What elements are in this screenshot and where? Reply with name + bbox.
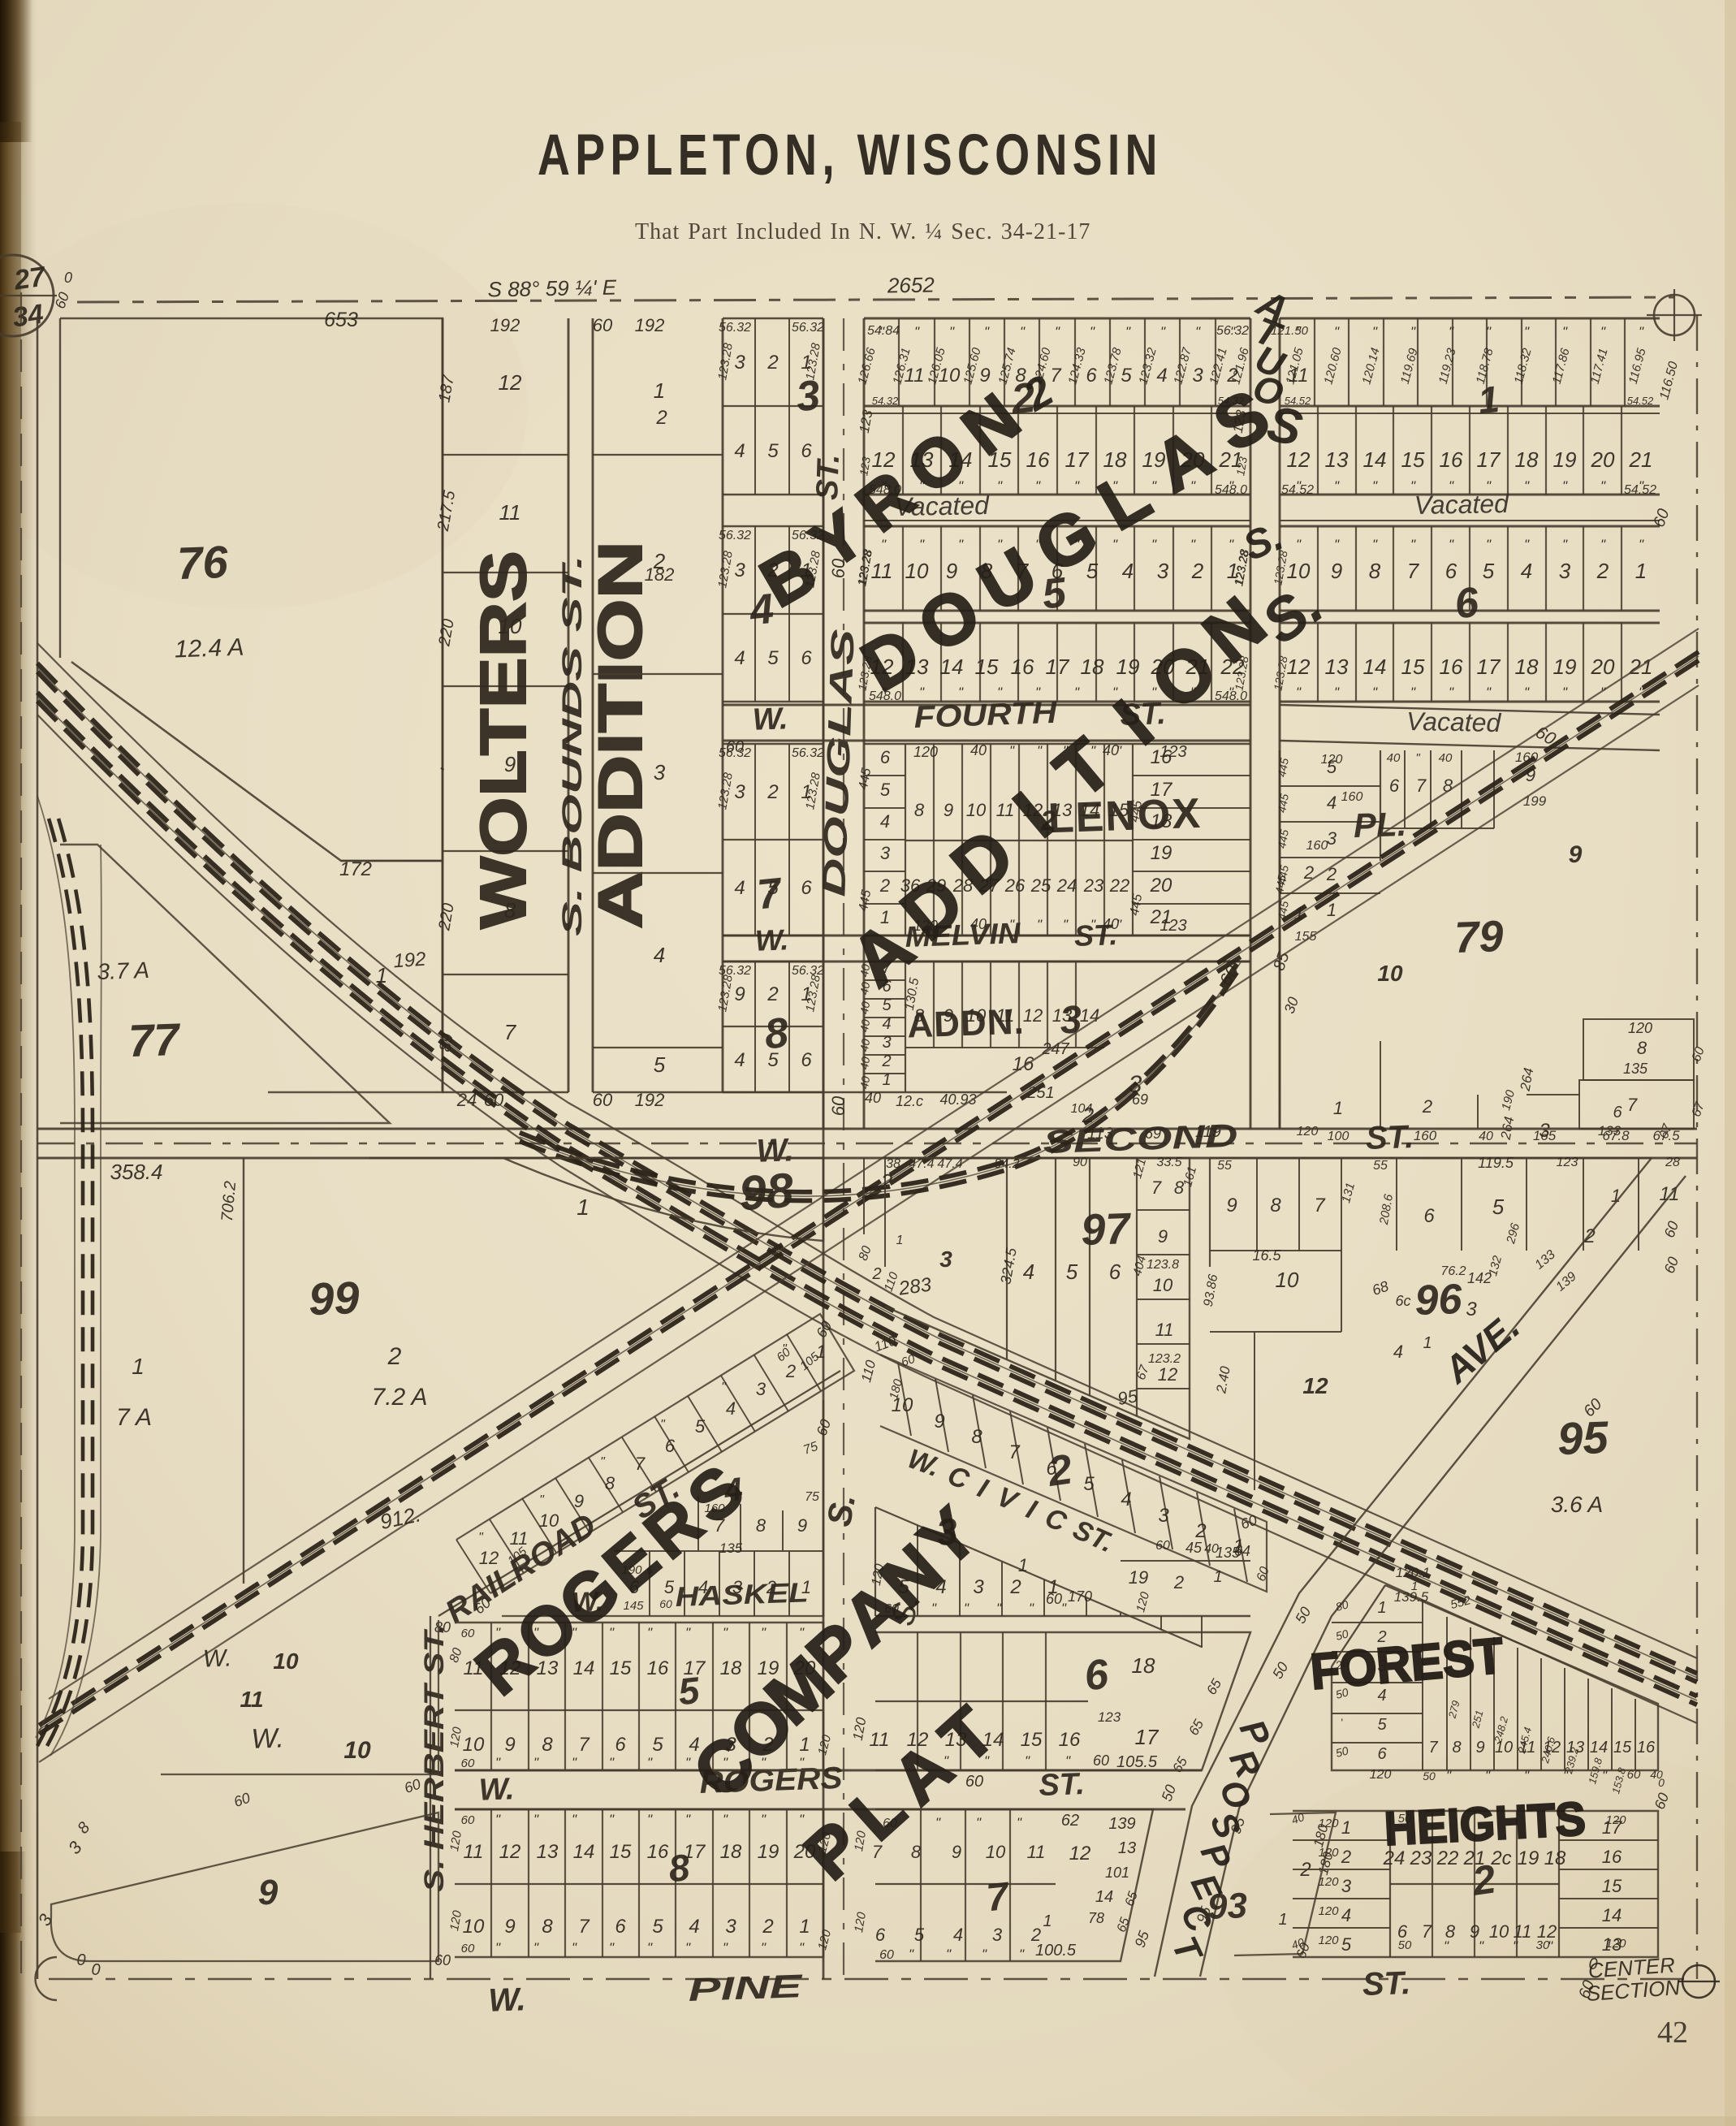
svg-text:": " (958, 685, 964, 700)
svg-text:": " (685, 1812, 691, 1827)
svg-text:1: 1 (1341, 1817, 1351, 1838)
svg-text:S 88° 59 ¼' E: S 88° 59 ¼' E (487, 275, 617, 302)
svg-text:247: 247 (1041, 1040, 1069, 1058)
svg-text:2: 2 (1422, 1096, 1432, 1117)
svg-text:": " (799, 1940, 805, 1955)
svg-text:6: 6 (801, 647, 812, 669)
svg-text:192: 192 (635, 315, 665, 335)
svg-text:123: 123 (1098, 1709, 1121, 1725)
svg-text:PL.: PL. (1353, 805, 1407, 845)
svg-text:19: 19 (1553, 655, 1577, 679)
svg-text:120: 120 (1318, 1904, 1339, 1918)
svg-text:": " (1063, 917, 1069, 932)
svg-text:": " (1019, 1947, 1025, 1962)
svg-text:": " (1639, 324, 1644, 339)
svg-text:172: 172 (339, 858, 372, 880)
svg-text:54.52: 54.52 (1627, 395, 1654, 407)
svg-text:7: 7 (1407, 559, 1420, 583)
svg-text:5: 5 (652, 1734, 663, 1756)
svg-text:": " (723, 1940, 728, 1955)
svg-text:4: 4 (734, 1049, 745, 1071)
svg-text:": " (609, 1812, 615, 1827)
svg-text:14: 14 (1363, 447, 1387, 472)
svg-text:Vacated: Vacated (1414, 489, 1509, 520)
svg-text:3: 3 (1192, 365, 1203, 387)
svg-text:18: 18 (1515, 655, 1539, 679)
svg-text:16: 16 (1440, 655, 1463, 679)
svg-text:192: 192 (490, 315, 520, 335)
svg-text:Vacated: Vacated (1406, 707, 1502, 737)
svg-text:": " (1372, 685, 1378, 700)
svg-text:12.4 A: 12.4 A (174, 634, 244, 663)
svg-text:62: 62 (1061, 1812, 1079, 1830)
svg-text:14: 14 (1363, 655, 1387, 679)
svg-text:": " (1160, 324, 1166, 339)
svg-text:1: 1 (1635, 559, 1647, 583)
svg-text:2: 2 (1191, 559, 1204, 583)
svg-text:5: 5 (1483, 559, 1495, 583)
svg-text:19: 19 (758, 1841, 779, 1863)
svg-text:50: 50 (1423, 1770, 1436, 1782)
svg-text:170: 170 (1068, 1588, 1092, 1605)
svg-text:19: 19 (1129, 1567, 1148, 1588)
svg-text:16: 16 (1602, 1847, 1622, 1867)
svg-text:17: 17 (1135, 1725, 1159, 1749)
svg-text:1: 1 (799, 1916, 810, 1938)
svg-text:APPLETON, WISCONSIN: APPLETON, WISCONSIN (538, 123, 1163, 187)
svg-text:": " (647, 1940, 653, 1955)
svg-text:54.52: 54.52 (1281, 483, 1314, 497)
svg-text:2: 2 (1341, 1847, 1351, 1867)
svg-text:706.2: 706.2 (218, 1181, 240, 1223)
svg-text:18: 18 (1544, 1847, 1566, 1869)
svg-text:3: 3 (725, 1916, 736, 1938)
svg-text:160: 160 (1306, 839, 1328, 853)
svg-text:40: 40 (1103, 742, 1119, 758)
svg-text:": " (1562, 324, 1568, 339)
svg-text:2652: 2652 (887, 272, 935, 297)
svg-text:20: 20 (1591, 447, 1615, 472)
svg-text:": " (984, 324, 990, 339)
svg-text:4: 4 (882, 1015, 891, 1033)
svg-text:12: 12 (1302, 1373, 1328, 1398)
svg-text:13: 13 (1566, 1739, 1584, 1757)
svg-text:": " (533, 1812, 539, 1827)
svg-text:": " (572, 1940, 577, 1955)
svg-text:S. HERBERT ST.: S. HERBERT ST. (419, 1624, 450, 1892)
svg-text:": " (1485, 1768, 1491, 1783)
svg-text:9: 9 (934, 1411, 944, 1432)
svg-text:120: 120 (1318, 1875, 1339, 1889)
svg-text:": " (958, 537, 964, 552)
svg-text:98: 98 (737, 1163, 796, 1221)
svg-text:95: 95 (1557, 1411, 1609, 1464)
svg-text:13: 13 (1118, 1839, 1136, 1857)
svg-text:16: 16 (647, 1841, 669, 1863)
svg-text:HEIGHTS: HEIGHTS (1383, 1792, 1587, 1856)
svg-text:99: 99 (308, 1272, 360, 1324)
svg-text:": " (1334, 537, 1340, 552)
svg-text:5: 5 (880, 780, 891, 800)
svg-text:60: 60 (461, 1813, 475, 1827)
svg-text:10: 10 (463, 1916, 485, 1938)
svg-text:1: 1 (1278, 1911, 1287, 1929)
svg-text:": " (1065, 1753, 1071, 1769)
svg-text:12: 12 (1287, 655, 1311, 679)
svg-text:ST.: ST. (1362, 1965, 1411, 2003)
svg-text:That Part Included In N. W. ¼: That Part Included In N. W. ¼ Sec. 34-21… (635, 219, 1090, 244)
svg-text:60: 60 (726, 738, 744, 756)
svg-text:34: 34 (11, 299, 45, 334)
svg-text:20: 20 (1591, 655, 1615, 679)
svg-text:56.32: 56.32 (1216, 324, 1249, 338)
svg-text:15: 15 (975, 655, 999, 679)
svg-text:": " (1486, 324, 1492, 339)
svg-text:5: 5 (1492, 1195, 1505, 1219)
svg-text:19: 19 (1553, 447, 1577, 472)
svg-text:1: 1 (1213, 1568, 1222, 1586)
svg-text:19: 19 (1116, 655, 1140, 679)
svg-text:": " (1229, 537, 1234, 552)
svg-text:9: 9 (944, 800, 953, 820)
svg-text:11: 11 (871, 559, 893, 583)
svg-text:10: 10 (1489, 1921, 1509, 1942)
svg-text:283: 283 (896, 1273, 933, 1300)
svg-text:": " (495, 1940, 501, 1955)
svg-text:21: 21 (1629, 447, 1653, 472)
svg-text:76: 76 (176, 536, 229, 589)
svg-text:7: 7 (1008, 1441, 1021, 1463)
svg-text:3.7 A: 3.7 A (97, 957, 149, 984)
svg-text:60: 60 (879, 1948, 894, 1962)
svg-text:0: 0 (91, 1961, 100, 1979)
svg-text:33.5: 33.5 (1156, 1156, 1181, 1169)
svg-text:7: 7 (1416, 776, 1427, 796)
svg-text:17: 17 (1046, 655, 1070, 679)
svg-text:11: 11 (1519, 1739, 1536, 1757)
svg-text:6: 6 (1109, 1260, 1121, 1284)
svg-text:40: 40 (865, 1090, 881, 1106)
svg-text:": " (1017, 1815, 1022, 1830)
svg-text:104: 104 (1071, 1102, 1093, 1116)
svg-text:3: 3 (1327, 828, 1337, 849)
svg-text:": " (1020, 324, 1026, 339)
svg-text:10: 10 (273, 1649, 299, 1674)
svg-text:": " (1524, 685, 1530, 700)
svg-text:": " (1600, 478, 1606, 494)
svg-text:": " (1334, 324, 1340, 339)
svg-text:": " (572, 1812, 577, 1827)
svg-text:": " (1415, 751, 1420, 765)
svg-text:19: 19 (1518, 1847, 1540, 1869)
svg-text:": " (976, 1815, 982, 1830)
svg-text:25: 25 (1030, 875, 1052, 896)
svg-text:8: 8 (1637, 1038, 1647, 1058)
svg-text:": " (1600, 537, 1606, 552)
svg-text:W.: W. (251, 1722, 285, 1754)
svg-text:": " (1410, 537, 1416, 552)
svg-text:11: 11 (1027, 1842, 1046, 1862)
svg-text:": " (964, 1601, 969, 1616)
svg-text:1: 1 (577, 1195, 589, 1220)
svg-text:10: 10 (343, 1737, 371, 1764)
svg-text:3: 3 (992, 1925, 1003, 1945)
svg-text:14: 14 (573, 1841, 595, 1863)
svg-text:9: 9 (797, 1515, 807, 1536)
svg-text:27: 27 (11, 261, 49, 296)
svg-text:5: 5 (654, 1052, 666, 1077)
svg-text:3: 3 (1341, 1876, 1352, 1896)
svg-text:ADDITION: ADDITION (586, 541, 655, 929)
svg-text:": " (761, 1940, 767, 1955)
svg-text:8: 8 (1452, 1739, 1461, 1757)
svg-text:75: 75 (805, 1490, 819, 1504)
svg-text:40: 40 (857, 1038, 872, 1052)
svg-text:8: 8 (605, 1473, 615, 1493)
svg-text:1: 1 (882, 1071, 891, 1089)
svg-text:ST.: ST. (1073, 918, 1118, 953)
svg-text:W.: W. (488, 1981, 526, 2019)
svg-text:120: 120 (1605, 1937, 1626, 1951)
svg-text:": " (1125, 324, 1131, 339)
svg-text:6: 6 (801, 440, 812, 462)
svg-text:": " (1334, 685, 1340, 700)
svg-text:": " (609, 1940, 615, 1955)
svg-text:7: 7 (578, 1916, 590, 1938)
svg-text:": " (1090, 324, 1095, 339)
svg-text:6: 6 (801, 877, 812, 899)
svg-text:8: 8 (971, 1426, 982, 1448)
svg-text:3: 3 (1466, 1299, 1477, 1320)
svg-text:160: 160 (1414, 1128, 1437, 1143)
svg-text:8: 8 (542, 1734, 553, 1756)
svg-text:": " (1410, 324, 1416, 339)
svg-text:3: 3 (734, 781, 745, 803)
svg-text:": " (914, 324, 920, 339)
svg-text:PINE: PINE (688, 1968, 804, 2008)
svg-text:": " (1449, 685, 1454, 700)
svg-text:135: 135 (1623, 1061, 1648, 1077)
svg-text:2: 2 (881, 1052, 891, 1070)
svg-text:60: 60 (461, 1757, 475, 1770)
svg-text:7: 7 (1627, 1095, 1638, 1115)
svg-text:22: 22 (1109, 875, 1129, 896)
svg-text:6: 6 (615, 1734, 626, 1756)
svg-text:4: 4 (1341, 1905, 1351, 1925)
svg-text:13: 13 (537, 1841, 559, 1863)
svg-text:": " (1562, 685, 1568, 700)
svg-text:": " (1524, 537, 1530, 552)
svg-text:192: 192 (393, 948, 427, 973)
svg-text:": " (1602, 1768, 1608, 1783)
svg-text:7 A: 7 A (116, 1404, 152, 1431)
svg-text:12: 12 (1543, 1739, 1561, 1757)
svg-text:": " (761, 1625, 767, 1640)
svg-text:6: 6 (615, 1916, 626, 1938)
svg-text:3: 3 (882, 1034, 891, 1052)
svg-text:2: 2 (1173, 1572, 1184, 1592)
svg-text:6c: 6c (1395, 1293, 1410, 1309)
svg-text:": " (647, 1755, 653, 1770)
svg-text:9: 9 (1226, 1195, 1237, 1216)
svg-text:50: 50 (1398, 1938, 1412, 1952)
svg-text:3.6 A: 3.6 A (1551, 1492, 1603, 1517)
svg-text:2: 2 (762, 1916, 773, 1938)
svg-text:15: 15 (610, 1841, 632, 1863)
svg-text:40: 40 (857, 1056, 872, 1070)
svg-text:3: 3 (734, 560, 745, 581)
svg-text:9: 9 (952, 1842, 961, 1862)
svg-text:15: 15 (1613, 1739, 1632, 1757)
svg-text:16: 16 (1059, 1729, 1081, 1751)
svg-text:12: 12 (1158, 1364, 1177, 1385)
svg-text:40: 40 (857, 1018, 872, 1033)
svg-text:7.2 A: 7.2 A (372, 1384, 428, 1411)
svg-text:123: 123 (1557, 1156, 1578, 1169)
svg-text:6: 6 (1423, 1205, 1435, 1227)
svg-text:": " (685, 1625, 691, 1640)
svg-text:56.32: 56.32 (719, 529, 751, 542)
svg-text:135: 135 (1216, 1545, 1241, 1561)
svg-text:": " (1055, 324, 1060, 339)
svg-text:8: 8 (756, 1515, 767, 1536)
svg-text:120: 120 (913, 744, 938, 760)
svg-text:40: 40 (970, 742, 987, 758)
svg-text:16: 16 (647, 1657, 669, 1679)
svg-text:2: 2 (655, 407, 667, 429)
svg-text:105.5: 105.5 (1116, 1753, 1158, 1771)
svg-text:9: 9 (1569, 841, 1583, 868)
svg-text:77: 77 (127, 1013, 182, 1066)
svg-text:": " (685, 1940, 691, 1955)
svg-text:67.8: 67.8 (1602, 1128, 1630, 1143)
svg-text:": " (1562, 537, 1568, 552)
svg-text:1: 1 (1377, 1599, 1386, 1617)
svg-text:17: 17 (1065, 447, 1090, 472)
svg-text:13: 13 (1325, 447, 1349, 472)
svg-text:ADDN.: ADDN. (907, 1002, 1026, 1046)
svg-text:19: 19 (1151, 842, 1172, 864)
svg-text:16: 16 (1011, 655, 1034, 679)
svg-text:5: 5 (1121, 365, 1132, 387)
svg-text:120: 120 (1605, 1813, 1626, 1827)
svg-text:40: 40 (857, 981, 872, 996)
svg-text:7: 7 (1314, 1195, 1326, 1216)
svg-text:": " (1151, 537, 1157, 552)
svg-text:120: 120 (1297, 1125, 1319, 1139)
svg-text:12: 12 (1023, 1005, 1043, 1026)
svg-text:155: 155 (1295, 930, 1317, 944)
svg-text:7: 7 (578, 1734, 590, 1756)
svg-text:119.5: 119.5 (1478, 1155, 1514, 1171)
svg-text:1: 1 (1018, 1555, 1028, 1575)
svg-text:": " (949, 324, 955, 339)
svg-text:14: 14 (1602, 1905, 1622, 1925)
svg-text:": " (1446, 1768, 1452, 1783)
svg-text:10: 10 (1153, 1275, 1173, 1295)
svg-text:": " (1449, 537, 1454, 552)
svg-text:": " (1190, 537, 1196, 552)
svg-text:S.: S. (819, 1491, 862, 1529)
svg-text:4: 4 (880, 811, 890, 832)
svg-text:": " (533, 1940, 539, 1955)
svg-text:": " (1061, 1601, 1067, 1616)
svg-text:": " (1639, 537, 1644, 552)
svg-text:54.32: 54.32 (872, 395, 899, 407)
svg-text:14: 14 (1590, 1739, 1608, 1757)
svg-text:10: 10 (1377, 961, 1403, 986)
svg-text:4: 4 (734, 647, 745, 669)
svg-text:55: 55 (1217, 1159, 1232, 1173)
svg-text:7: 7 (504, 1020, 517, 1044)
svg-text:6: 6 (1377, 1745, 1387, 1763)
svg-text:60: 60 (461, 1942, 475, 1955)
svg-text:56.32: 56.32 (719, 321, 751, 335)
svg-text:1: 1 (1476, 378, 1501, 421)
svg-text:60: 60 (1093, 1752, 1109, 1769)
svg-text:4: 4 (1121, 1489, 1131, 1510)
svg-text:": " (1524, 478, 1530, 494)
svg-text:4: 4 (1327, 793, 1337, 813)
svg-text:4: 4 (953, 1925, 963, 1945)
svg-text:1: 1 (654, 378, 665, 403)
svg-text:ST.: ST. (1365, 1119, 1414, 1156)
svg-text:0: 0 (64, 270, 72, 286)
svg-text:28: 28 (1665, 1156, 1680, 1169)
svg-text:2: 2 (767, 781, 778, 803)
svg-text:93: 93 (1207, 1886, 1248, 1927)
svg-text:30: 30 (1536, 1938, 1550, 1952)
svg-text:": " (1486, 537, 1492, 552)
svg-text:": " (1513, 1938, 1518, 1954)
svg-text:4: 4 (1393, 1342, 1403, 1362)
svg-text:123: 123 (1159, 917, 1186, 935)
svg-text:54.84: 54.84 (867, 324, 900, 338)
svg-text:5: 5 (767, 440, 779, 462)
svg-text:47.4: 47.4 (909, 1157, 934, 1171)
svg-text:120: 120 (1318, 1846, 1339, 1860)
svg-text:": " (647, 1625, 653, 1640)
svg-text:6: 6 (875, 1925, 886, 1945)
svg-text:1: 1 (1043, 1912, 1052, 1930)
svg-text:": " (909, 1947, 914, 1962)
svg-text:2c: 2c (1490, 1847, 1511, 1869)
svg-text:12: 12 (499, 1841, 521, 1863)
svg-text:6: 6 (880, 747, 891, 767)
svg-text:1: 1 (1423, 1334, 1432, 1352)
svg-text:4: 4 (1521, 559, 1532, 583)
svg-text:120: 120 (1628, 1020, 1652, 1036)
svg-text:199: 199 (1523, 793, 1547, 809)
svg-text:6: 6 (1613, 1104, 1622, 1121)
svg-text:": " (1486, 685, 1492, 700)
svg-text:7: 7 (1151, 1178, 1162, 1198)
svg-text:": " (799, 1755, 805, 1770)
svg-text:100.5: 100.5 (1035, 1942, 1077, 1960)
svg-text:ST.: ST. (810, 454, 846, 501)
svg-text:40.93: 40.93 (939, 1091, 976, 1108)
svg-text:10: 10 (986, 1842, 1006, 1862)
svg-text:20: 20 (1150, 875, 1172, 897)
svg-text:": " (1479, 1938, 1484, 1954)
svg-text:2: 2 (871, 1265, 881, 1283)
svg-text:96: 96 (1414, 1276, 1463, 1324)
svg-text:": " (1372, 478, 1378, 494)
svg-text:3: 3 (734, 352, 745, 374)
svg-text:45: 45 (1185, 1540, 1203, 1556)
svg-text:S. BOUNDS ST.: S. BOUNDS ST. (557, 555, 588, 936)
svg-text:12: 12 (1069, 1843, 1091, 1865)
